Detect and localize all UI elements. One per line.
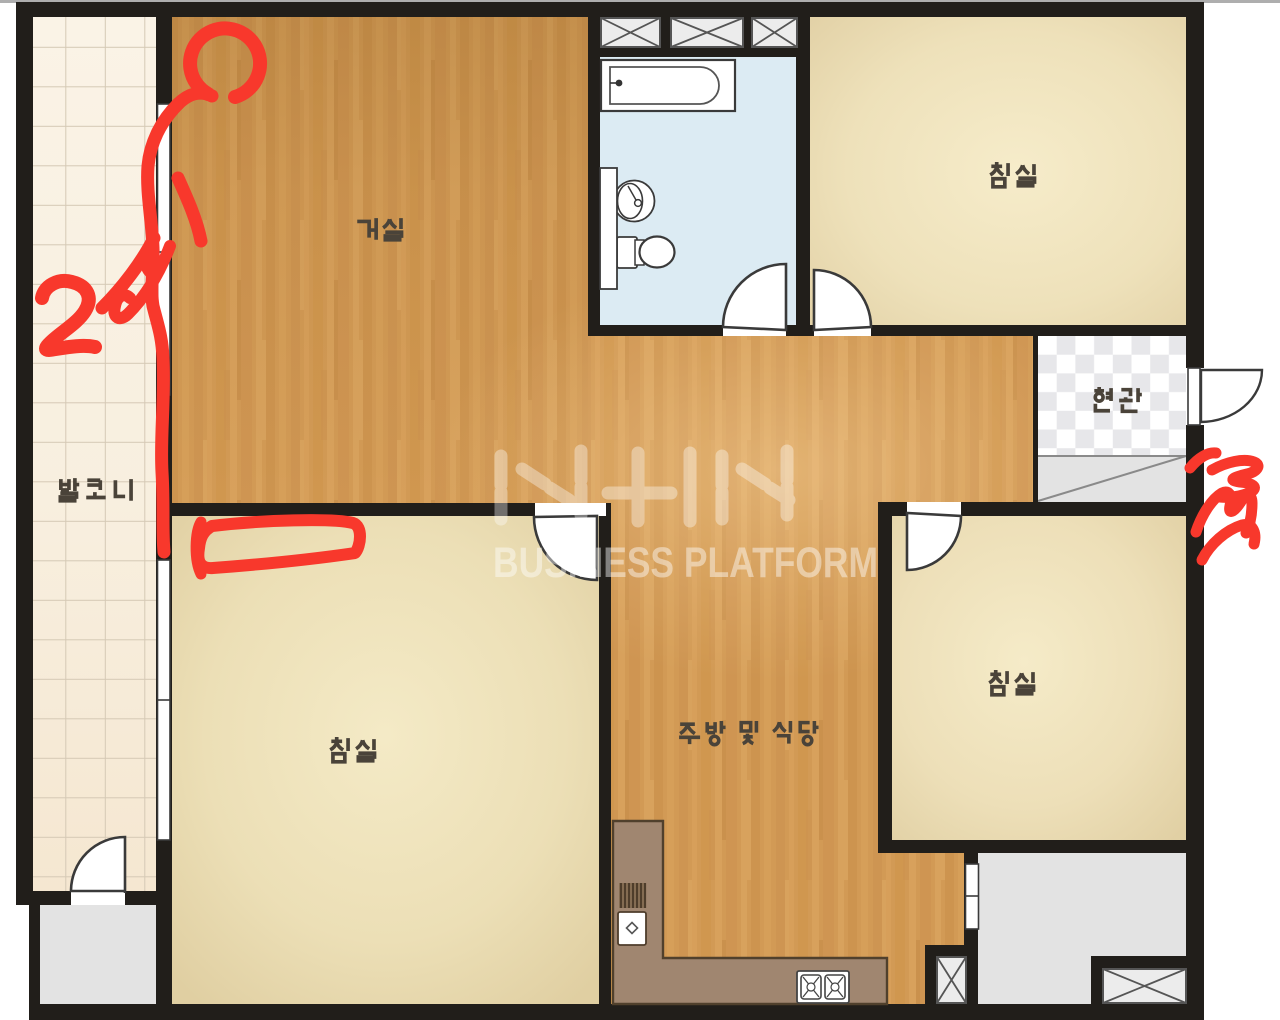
svg-text:BUSINESS PLATFORM: BUSINESS PLATFORM xyxy=(493,539,878,587)
